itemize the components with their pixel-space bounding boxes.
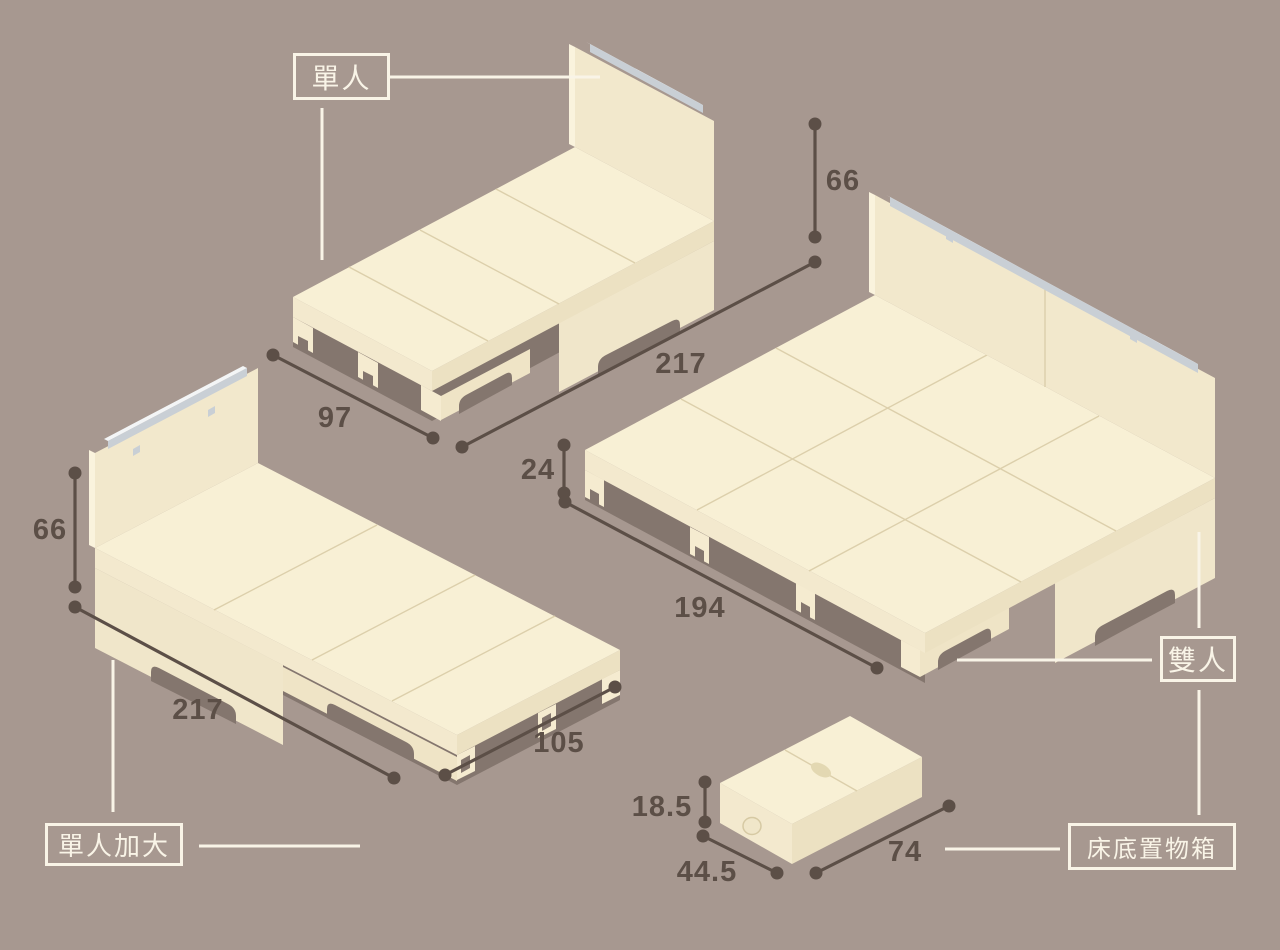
storage-box-depth-value: 44.5 <box>677 856 737 888</box>
single-xl-bed-label: 單人加大 <box>45 823 183 866</box>
bed-dimension-diagram: 66 217 97 24 194 66 217 105 18.5 44.5 74… <box>0 0 1280 950</box>
storage-box-height-dimension <box>699 776 712 829</box>
single-width-value: 97 <box>318 402 352 434</box>
single-xl-bed-label-text: 單人加大 <box>58 826 170 863</box>
single-bed-label: 單人 <box>293 53 390 100</box>
single-xl-width-value: 105 <box>533 727 584 759</box>
double-bed-label-text: 雙人 <box>1168 639 1228 679</box>
single-height-value: 66 <box>826 165 860 197</box>
double-platform-height-value: 24 <box>521 454 555 486</box>
double-width-value: 194 <box>674 592 725 624</box>
single-xl-bed-illustration <box>89 366 620 785</box>
single-bed-label-text: 單人 <box>311 57 371 97</box>
storage-box-knob <box>743 818 761 835</box>
double-bed-label: 雙人 <box>1160 636 1236 682</box>
single-xl-height-value: 66 <box>33 514 67 546</box>
single-xl-height-dimension <box>69 467 82 594</box>
storage-box-label-text: 床底置物箱 <box>1087 829 1217 864</box>
storage-box-height-value: 18.5 <box>632 791 692 823</box>
double-platform-height-dimension <box>558 439 571 500</box>
storage-box-label: 床底置物箱 <box>1068 823 1236 870</box>
storage-box-width-value: 74 <box>888 836 922 868</box>
single-xl-length-value: 217 <box>172 694 223 726</box>
single-length-value: 217 <box>655 348 706 380</box>
diagram-canvas: 66 217 97 24 194 66 217 105 18.5 44.5 74 <box>0 0 1280 950</box>
single-height-dimension <box>809 118 822 244</box>
